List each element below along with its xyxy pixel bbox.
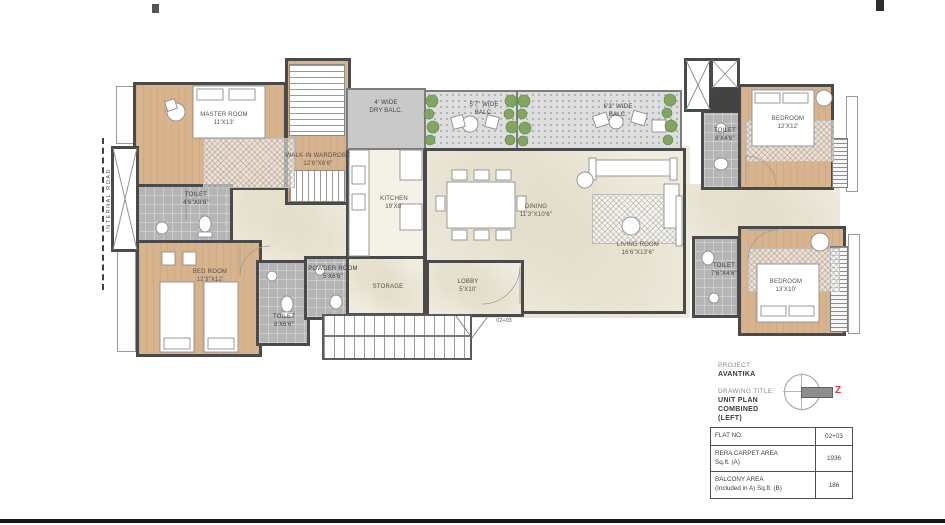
label-dining: DINING11'3"X10'6" bbox=[520, 204, 552, 220]
ledge-left-bottom bbox=[117, 248, 136, 352]
table-row: RERA CARPET AREASq.ft. (A) 1936 bbox=[711, 446, 852, 473]
project-name: AVANTIKA bbox=[718, 371, 756, 378]
area-table: FLAT NO. 02+03 RERA CARPET AREASq.ft. (A… bbox=[710, 427, 853, 499]
wardrobe-strip-bedroom-3 bbox=[832, 138, 848, 188]
label-storage: STORAGE bbox=[373, 284, 404, 292]
page-bottom-rule bbox=[0, 519, 945, 523]
label-bedroom-4: BEDROOM13'X10' bbox=[770, 279, 802, 295]
label-balcony-2: 6'3" WIDEBALC. bbox=[603, 104, 632, 120]
ledge-right-bottom bbox=[848, 234, 860, 334]
corner-mark-top-left bbox=[152, 4, 159, 13]
label-balcony-1: 5'7" WIDEBALC. bbox=[469, 102, 498, 118]
room-toilet-3 bbox=[701, 110, 741, 190]
north-arrow-bar bbox=[801, 387, 833, 398]
staircase bbox=[322, 314, 472, 360]
room-balcony-1 bbox=[424, 90, 518, 152]
corner-mark-top-right bbox=[876, 0, 884, 11]
room-balcony-2 bbox=[516, 90, 682, 152]
internal-road-line bbox=[102, 138, 104, 290]
label-living-room: LIVING ROOM16'6"X13'6" bbox=[617, 242, 659, 258]
lift-shaft-top-a bbox=[684, 58, 712, 112]
label-toilet-master: TOILET4'6"X8'6" bbox=[183, 192, 209, 208]
drawing-title-label: DRAWING TITLE: bbox=[718, 388, 775, 395]
label-dry-balcony: 4' WIDEDRY BALC. bbox=[369, 100, 402, 116]
floor-plan-canvas: INTERNAL ROAD bbox=[0, 0, 945, 525]
balcony-area-value: 186 bbox=[816, 472, 852, 498]
wardrobe-hanging bbox=[289, 170, 345, 202]
wardrobe-shelves bbox=[289, 64, 345, 136]
duct-block bbox=[710, 88, 740, 112]
drawing-title-line1: UNIT PLAN bbox=[718, 397, 758, 404]
rug-living bbox=[592, 194, 680, 244]
label-bedroom-3: BEDROOM12'X12' bbox=[772, 116, 804, 132]
room-toilet-2 bbox=[256, 260, 310, 346]
drawing-title-line3: (LEFT) bbox=[718, 415, 742, 422]
label-toilet-3: TOILET8'X4'6" bbox=[714, 128, 736, 144]
label-kitchen: KITCHEN19'X8' bbox=[380, 196, 408, 212]
label-master-room: MASTER ROOM11'X13' bbox=[200, 112, 248, 128]
carpet-area-value: 1936 bbox=[816, 446, 852, 472]
label-walkin-wardrobe: WALK-IN WARDROBE12'6"X6'6" bbox=[286, 153, 351, 169]
project-label: PROJECT: bbox=[718, 362, 752, 369]
table-row: FLAT NO. 02+03 bbox=[711, 428, 852, 446]
drawing-title-line2: COMBINED bbox=[718, 406, 759, 413]
ledge-left-top bbox=[116, 86, 134, 144]
table-row: BALCONY AREA(Included in A) Sq.ft. (B) 1… bbox=[711, 472, 852, 498]
flat-entry-marker: 02+03 bbox=[496, 318, 511, 324]
label-toilet-4: TOILET7'6"X4'6" bbox=[711, 263, 737, 279]
room-dry-balcony bbox=[346, 88, 426, 150]
label-powder-room: POWDER ROOM5'X6'6" bbox=[308, 266, 358, 282]
label-toilet-2: TOILET8'X6'6" bbox=[273, 314, 295, 330]
rug-master bbox=[203, 138, 295, 188]
label-lobby: LOBBY5'X10' bbox=[457, 279, 478, 295]
north-letter: Z bbox=[835, 385, 841, 396]
staircase-landing-line bbox=[324, 335, 470, 337]
lift-shaft-left bbox=[111, 146, 139, 252]
lift-shaft-top-b bbox=[710, 58, 740, 90]
flat-no-value: 02+03 bbox=[816, 428, 852, 445]
room-bedroom-2 bbox=[136, 240, 262, 357]
label-bedroom-2: BED ROOM12'3"X12' bbox=[193, 269, 227, 285]
